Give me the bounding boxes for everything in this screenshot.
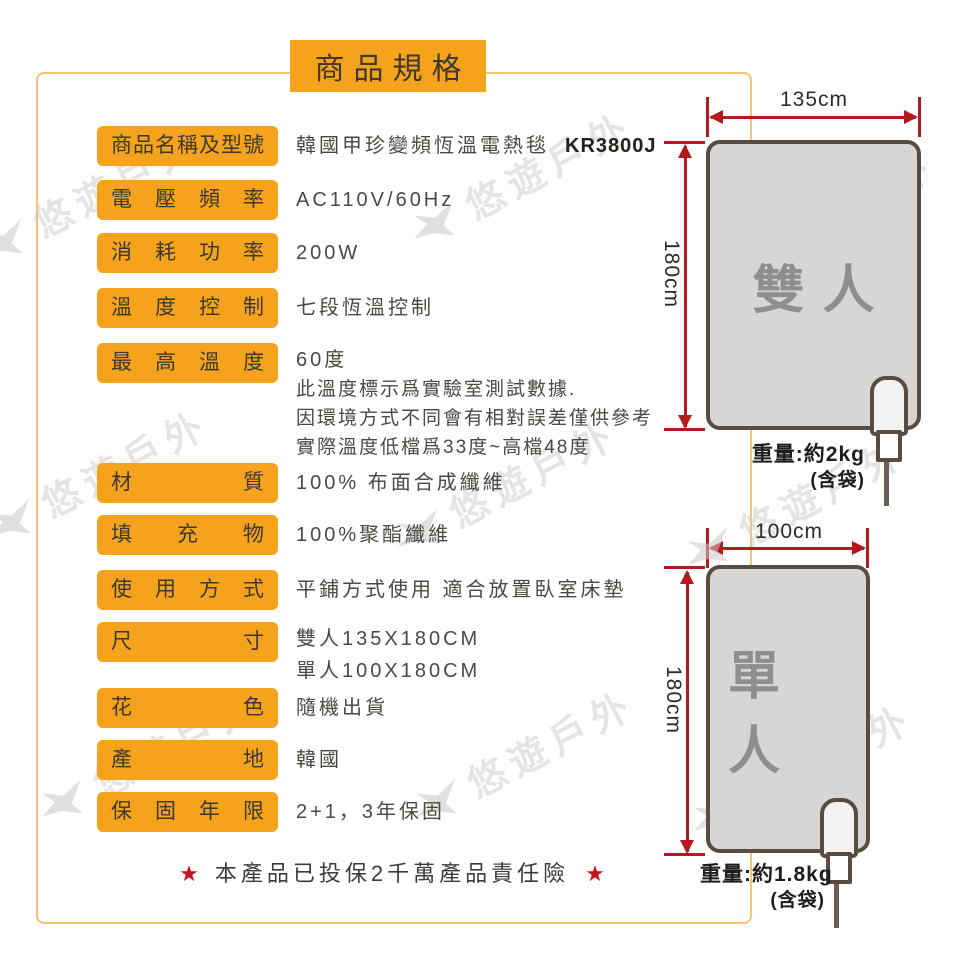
spec-label: 填充物: [97, 515, 278, 555]
double-height-arrow: [684, 146, 687, 427]
double-height-label: 180cm: [659, 237, 683, 311]
spec-row-voltage: 電壓頻率 AC110V/60Hz: [97, 180, 454, 220]
temp-note: 因環境方式不同會有相對誤差僅供參考: [296, 404, 653, 433]
spec-value: 100% 布面合成纖維: [296, 463, 506, 503]
spec-row-temp-control: 溫度控制 七段恆溫控制: [97, 288, 434, 328]
spec-row-max-temp: 最高溫度 60度 此溫度標示爲實驗室測試數據. 因環境方式不同會有相對誤差僅供參…: [97, 343, 653, 462]
spec-label: 使用方式: [97, 570, 278, 610]
spec-label: 花色: [97, 688, 278, 728]
single-controller: [820, 798, 858, 858]
page-title: 商品規格: [290, 40, 486, 92]
spec-label: 產地: [97, 740, 278, 780]
spec-label: 尺寸: [97, 622, 278, 662]
spec-row-size: 尺寸 雙人135X180CM 單人100X180CM: [97, 622, 480, 686]
spec-row-usage: 使用方式 平鋪方式使用 適合放置臥室床墊: [97, 570, 627, 610]
single-width-arrow: [711, 547, 864, 550]
spec-row-origin: 產地 韓國: [97, 740, 342, 780]
temp-note: 此溫度標示爲實驗室測試數據.: [296, 375, 653, 404]
spec-label: 材質: [97, 463, 278, 503]
spec-row-name-model: 商品名稱及型號 韓國甲珍變頻恆溫電熱毯KR3800J: [97, 126, 657, 166]
spec-value: 雙人135X180CM: [296, 622, 480, 654]
temp-note: 實際溫度低檔爲33度~高檔48度: [296, 433, 653, 462]
double-controller-plug: [876, 430, 902, 462]
double-controller: [870, 376, 908, 436]
spec-value: 隨機出貨: [296, 688, 388, 728]
dimension-tick: [664, 566, 705, 569]
spec-row-color: 花色 隨機出貨: [97, 688, 388, 728]
spec-row-warranty: 保固年限 2+1，3年保固: [97, 792, 445, 832]
double-blanket-label: 雙人: [734, 248, 892, 323]
spec-row-power: 消耗功率 200W: [97, 233, 360, 273]
spec-label: 商品名稱及型號: [97, 126, 278, 166]
spec-value: 60度: [296, 343, 653, 375]
spec-value: 韓國甲珍變頻恆溫電熱毯KR3800J: [296, 126, 657, 166]
star-icon: ★: [585, 861, 605, 886]
double-weight: 重量:約2kg (含袋): [740, 442, 865, 493]
star-icon: ★: [179, 861, 199, 886]
dimension-tick: [918, 97, 921, 137]
single-blanket-label: 單人: [710, 634, 866, 784]
spec-label: 消耗功率: [97, 233, 278, 273]
spec-label: 溫度控制: [97, 288, 278, 328]
insurance-note: ★本產品已投保2千萬產品責任險★: [36, 856, 748, 888]
spec-value: 韓國: [296, 740, 342, 780]
spec-label: 保固年限: [97, 792, 278, 832]
double-width-label: 135cm: [710, 88, 918, 112]
bird-logo-icon: [0, 211, 36, 271]
single-height-label: 180cm: [661, 663, 685, 737]
spec-value: 平鋪方式使用 適合放置臥室床墊: [296, 570, 627, 610]
spec-value: 100%聚酯纖維: [296, 515, 451, 555]
spec-row-material: 材質 100% 布面合成纖維: [97, 463, 506, 503]
double-width-arrow: [711, 116, 916, 119]
model-number: KR3800J: [565, 135, 657, 157]
single-height-arrow: [686, 572, 689, 852]
single-width-label: 100cm: [710, 520, 868, 544]
spec-value: 200W: [296, 233, 360, 273]
spec-value: AC110V/60Hz: [296, 180, 454, 220]
spec-value: 2+1，3年保固: [296, 792, 445, 832]
spec-value: 單人100X180CM: [296, 654, 480, 686]
spec-label: 最高溫度: [97, 343, 278, 383]
spec-row-filling: 填充物 100%聚酯纖維: [97, 515, 451, 555]
single-weight: 重量:約1.8kg (含袋): [700, 862, 825, 913]
spec-label: 電壓頻率: [97, 180, 278, 220]
spec-value: 七段恆溫控制: [296, 288, 434, 328]
